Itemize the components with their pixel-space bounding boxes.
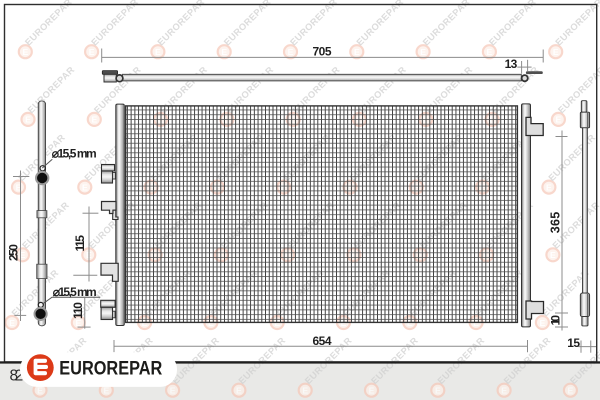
svg-text:705: 705 — [313, 44, 332, 58]
svg-text:⌀15,5 mm: ⌀15,5 mm — [53, 285, 97, 299]
svg-text:115: 115 — [73, 235, 87, 252]
svg-text:110: 110 — [71, 302, 85, 319]
svg-text:365: 365 — [549, 212, 563, 234]
svg-text:654: 654 — [313, 334, 332, 348]
svg-text:13: 13 — [505, 57, 518, 71]
svg-text:⌀15,5 mm: ⌀15,5 mm — [52, 146, 97, 160]
svg-text:250: 250 — [7, 244, 21, 261]
svg-text:15: 15 — [567, 336, 580, 350]
svg-text:EUROREPAR: EUROREPAR — [59, 358, 162, 380]
svg-text:10: 10 — [548, 315, 562, 326]
